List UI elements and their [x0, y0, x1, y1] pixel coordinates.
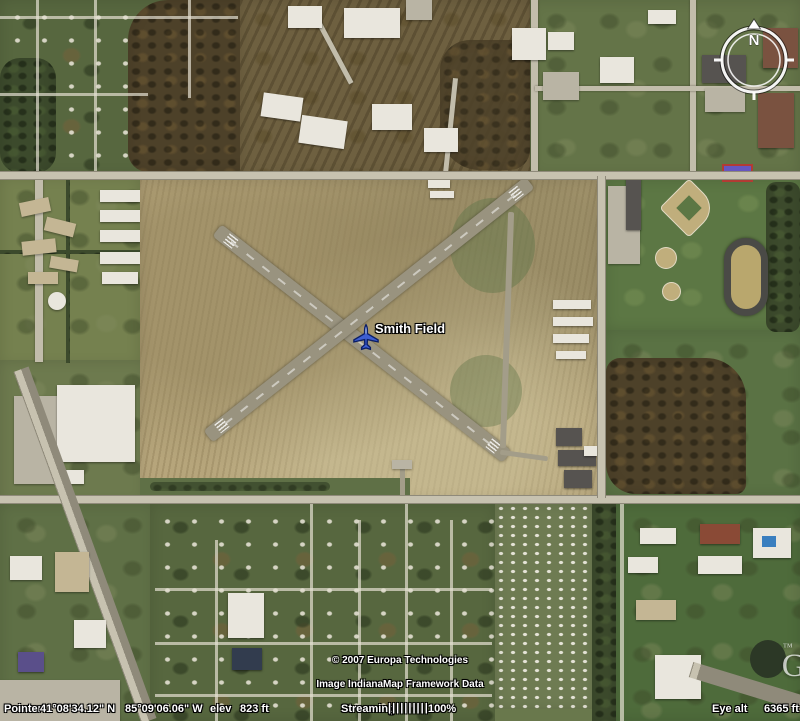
building — [648, 10, 676, 24]
status-pointer-label: Pointer — [4, 703, 42, 715]
attribution-line-1: © 2007 Europa Technologies — [0, 655, 800, 666]
building — [512, 28, 546, 60]
building — [288, 6, 322, 28]
hangar — [430, 191, 454, 198]
building — [10, 556, 42, 580]
terrain-woods-leftedge — [0, 58, 56, 173]
street — [94, 0, 97, 176]
terrain-trees-rightedge — [766, 182, 800, 332]
building — [628, 557, 658, 573]
t-hangar-row — [553, 334, 589, 343]
building — [55, 552, 89, 592]
building — [406, 0, 432, 20]
t-hangar-row — [553, 317, 593, 326]
building — [372, 104, 412, 130]
status-latitude: 41°08'34.12" N — [40, 703, 115, 715]
status-elevation: 823 ft — [240, 703, 269, 715]
warehouse-row — [102, 272, 138, 284]
earth-viewport[interactable]: Smith Field N Google™ © 2007 Europa Tech… — [0, 0, 800, 721]
status-streaming-percent: 100% — [428, 703, 456, 715]
street — [155, 694, 492, 697]
street — [358, 520, 361, 721]
building — [636, 600, 676, 620]
status-longitude: 85°09'06.06" W — [125, 703, 203, 715]
streaming-progress-bars: |||||||||| — [388, 702, 429, 714]
parking-lot — [543, 72, 579, 100]
building — [600, 57, 634, 83]
status-elev-label: elev — [210, 703, 231, 715]
compass-north-label: N — [749, 32, 760, 49]
t-hangar-row — [553, 300, 591, 309]
running-track — [724, 238, 768, 316]
road-east-vertical — [597, 176, 606, 498]
terrain-woods-right — [606, 358, 746, 494]
main-road-south — [0, 495, 800, 504]
swimming-pool — [762, 536, 776, 547]
street — [188, 0, 191, 98]
apartment-cluster — [28, 272, 58, 284]
building — [424, 128, 458, 152]
google-logo-tm: ™ — [783, 642, 793, 653]
building — [228, 593, 264, 638]
status-eye-alt-label: Eye alt — [712, 703, 747, 715]
ball-diamond-small — [655, 247, 677, 269]
building — [344, 8, 400, 38]
placemark-label[interactable]: Smith Field — [375, 321, 445, 336]
street — [155, 588, 492, 591]
warehouse-row — [100, 230, 140, 242]
status-eye-altitude: 6365 ft — [764, 703, 799, 715]
warehouse-row — [100, 210, 140, 222]
tree-line-south — [150, 482, 330, 491]
building — [584, 446, 598, 456]
building — [548, 32, 574, 50]
t-hangar-row — [556, 351, 586, 359]
warehouse-row — [100, 252, 140, 264]
street — [450, 520, 453, 721]
street — [215, 540, 218, 721]
hangar — [428, 180, 450, 188]
warehouse-row — [100, 190, 140, 202]
street — [36, 0, 39, 176]
street — [0, 93, 148, 96]
water-tank — [48, 292, 66, 310]
building — [74, 620, 106, 648]
hangar-dark — [556, 428, 582, 446]
main-road-north — [0, 171, 800, 180]
hangar-row-dark — [626, 172, 641, 230]
big-box-store — [57, 385, 135, 462]
ball-diamond-small — [662, 282, 681, 301]
street — [155, 642, 492, 645]
attribution-line-2: Image IndianaMap Framework Data — [0, 679, 800, 690]
building — [700, 524, 740, 544]
hangar-dark — [564, 470, 592, 488]
compass-rose[interactable]: N — [712, 18, 796, 102]
building — [698, 556, 742, 574]
building — [640, 528, 676, 544]
status-streaming-label: Streaming — [341, 703, 395, 715]
ramp-pad — [392, 460, 412, 469]
